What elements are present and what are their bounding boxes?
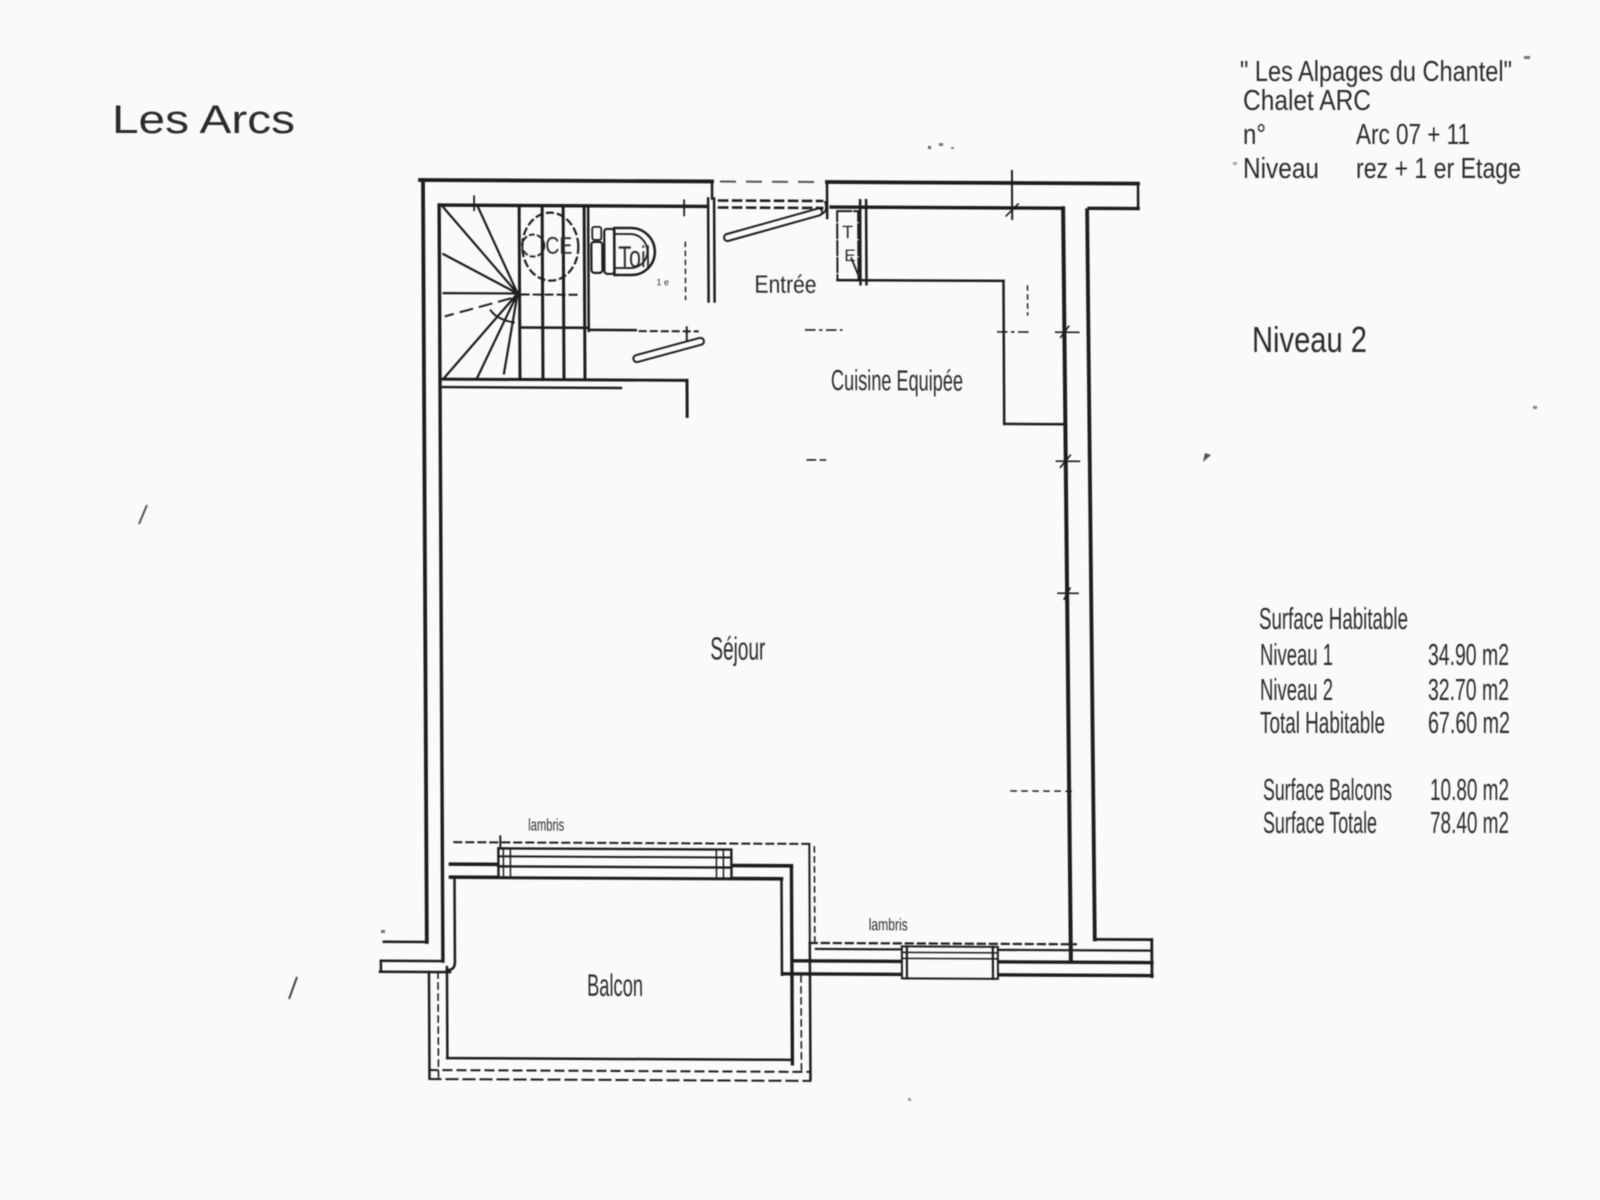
svg-text:Arc 07 + 11: Arc 07 + 11 <box>1356 119 1470 151</box>
svg-text:n°: n° <box>1243 119 1266 151</box>
svg-text:Surface Totale: Surface Totale <box>1263 805 1377 840</box>
svg-text:T: T <box>842 222 853 242</box>
svg-text:Cuisine Equipée: Cuisine Equipée <box>831 365 963 398</box>
svg-text:Toil: Toil <box>618 241 650 274</box>
svg-text:" Les Alpages du Chantel": " Les Alpages du Chantel" <box>1240 56 1512 88</box>
svg-text:Balcon: Balcon <box>587 968 643 1003</box>
svg-text:1 e: 1 e <box>656 277 669 287</box>
svg-text:32.70 m2: 32.70 m2 <box>1428 672 1509 707</box>
svg-text:Niveau: Niveau <box>1243 153 1319 185</box>
svg-text:Entrée: Entrée <box>754 271 816 299</box>
svg-text:Séjour: Séjour <box>710 630 765 666</box>
svg-text:E: E <box>844 246 855 265</box>
svg-text:Total Habitable: Total Habitable <box>1260 705 1385 740</box>
svg-text:Niveau 1: Niveau 1 <box>1260 637 1333 672</box>
svg-text:Niveau 2: Niveau 2 <box>1252 319 1367 360</box>
svg-text:34.90 m2: 34.90 m2 <box>1428 637 1509 672</box>
svg-text:Niveau 2: Niveau 2 <box>1260 672 1333 707</box>
svg-text:rez + 1 er Etage: rez + 1 er Etage <box>1356 153 1521 185</box>
svg-text:Surface Habitable: Surface Habitable <box>1259 601 1408 636</box>
svg-text:lambris: lambris <box>528 816 564 835</box>
svg-text:10.80 m2: 10.80 m2 <box>1430 772 1509 807</box>
svg-text:CE: CE <box>545 233 572 260</box>
svg-text:Chalet ARC: Chalet ARC <box>1243 85 1371 117</box>
svg-text:Surface Balcons: Surface Balcons <box>1263 772 1392 807</box>
svg-text:67.60 m2: 67.60 m2 <box>1428 705 1510 740</box>
svg-text:lambris: lambris <box>869 915 908 934</box>
svg-text:78.40 m2: 78.40 m2 <box>1430 805 1509 840</box>
svg-text:Les Arcs: Les Arcs <box>112 98 295 142</box>
